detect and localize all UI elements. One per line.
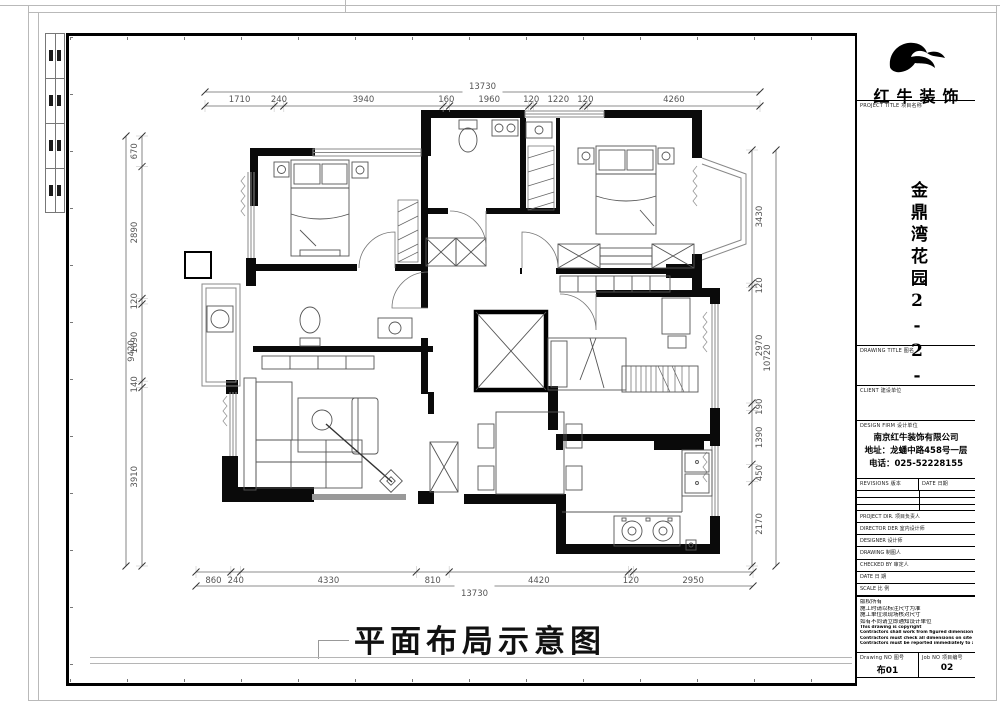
- svg-text:1220: 1220: [547, 95, 569, 105]
- svg-text:3430: 3430: [755, 206, 765, 228]
- svg-text:2950: 2950: [682, 576, 704, 586]
- svg-text:450: 450: [755, 465, 765, 481]
- revisions-section: REVISIONS 版本 DATE 日期: [857, 478, 975, 510]
- title-block-footer: [857, 677, 975, 686]
- svg-text:4330: 4330: [318, 576, 340, 586]
- firm-phone: 电话：025-52228155: [857, 458, 975, 471]
- svg-text:10720: 10720: [763, 344, 773, 371]
- dimension-annotations: 1710240394016019601201220120426013730860…: [0, 0, 1000, 710]
- svg-text:240: 240: [228, 576, 244, 586]
- svg-text:2170: 2170: [755, 513, 765, 535]
- svg-text:120: 120: [755, 277, 765, 293]
- svg-text:4260: 4260: [663, 95, 685, 105]
- svg-text:1710: 1710: [229, 95, 251, 105]
- svg-text:1960: 1960: [478, 95, 500, 105]
- project-title-section: PROJECT TITLE 项目名称 金鼎湾花园2-2-701: [857, 100, 975, 345]
- svg-text:190: 190: [755, 399, 765, 415]
- svg-text:670: 670: [130, 143, 140, 159]
- copyright-notes: 版权所有施工时请以标注尺寸为准施工单位须现场核对尺寸如有不同请立即通知设计单位T…: [857, 595, 975, 652]
- revision-empty-row: [857, 490, 975, 497]
- svg-text:4420: 4420: [528, 576, 550, 586]
- firm-address: 地址：龙蟠中路458号一层: [857, 445, 975, 458]
- staff-rows: PROJECT DIR. 项目负责人DIRECTOR DER 室内设计师DESI…: [857, 510, 975, 595]
- svg-text:3910: 3910: [130, 466, 140, 488]
- drawing-title-section: DRAWING TITLE 图名: [857, 345, 975, 385]
- revision-empty-row: [857, 497, 975, 504]
- drawing-title-label: DRAWING TITLE 图名: [857, 346, 975, 354]
- svg-text:13730: 13730: [461, 589, 488, 599]
- job-no-label: Job NO 项目编号: [919, 653, 975, 661]
- title-block: 红牛装饰 PROJECT TITLE 项目名称 金鼎湾花园2-2-701 DRA…: [855, 33, 975, 686]
- svg-text:160: 160: [438, 95, 454, 105]
- drawing-main-title: 平面布局示意图: [310, 616, 650, 661]
- client-label: CLIENT 建设单位: [857, 386, 975, 394]
- svg-text:9420: 9420: [127, 340, 137, 362]
- project-title-label: PROJECT TITLE 项目名称: [857, 101, 975, 109]
- design-firm-label: DESIGN FIRM 设计单位: [857, 421, 975, 429]
- firm-name: 南京红牛装饰有限公司: [857, 432, 975, 445]
- svg-text:140: 140: [130, 376, 140, 392]
- title-underline-2: [90, 663, 852, 664]
- drawing-no-value: 布01: [857, 663, 918, 676]
- brand-logo-bull-icon: [882, 37, 952, 83]
- svg-text:2890: 2890: [130, 222, 140, 244]
- client-section: CLIENT 建设单位: [857, 385, 975, 420]
- svg-text:1390: 1390: [755, 427, 765, 449]
- svg-text:240: 240: [271, 95, 287, 105]
- drawing-no-label: Drawing NO 图号: [857, 653, 918, 661]
- design-firm-section: DESIGN FIRM 设计单位 南京红牛装饰有限公司 地址：龙蟠中路458号一…: [857, 420, 975, 478]
- svg-text:13730: 13730: [469, 82, 496, 92]
- revisions-date-label: DATE 日期: [919, 479, 948, 487]
- svg-text:860: 860: [205, 576, 221, 586]
- revisions-label: REVISIONS 版本: [857, 479, 919, 490]
- svg-text:120: 120: [623, 576, 639, 586]
- svg-text:120: 120: [577, 95, 593, 105]
- svg-text:3940: 3940: [353, 95, 375, 105]
- svg-text:120: 120: [130, 293, 140, 309]
- svg-text:120: 120: [523, 95, 539, 105]
- job-no-value: 02: [919, 663, 975, 673]
- svg-text:810: 810: [425, 576, 441, 586]
- number-cells: Drawing NO 图号 布01 Job NO 项目编号 02: [857, 652, 975, 677]
